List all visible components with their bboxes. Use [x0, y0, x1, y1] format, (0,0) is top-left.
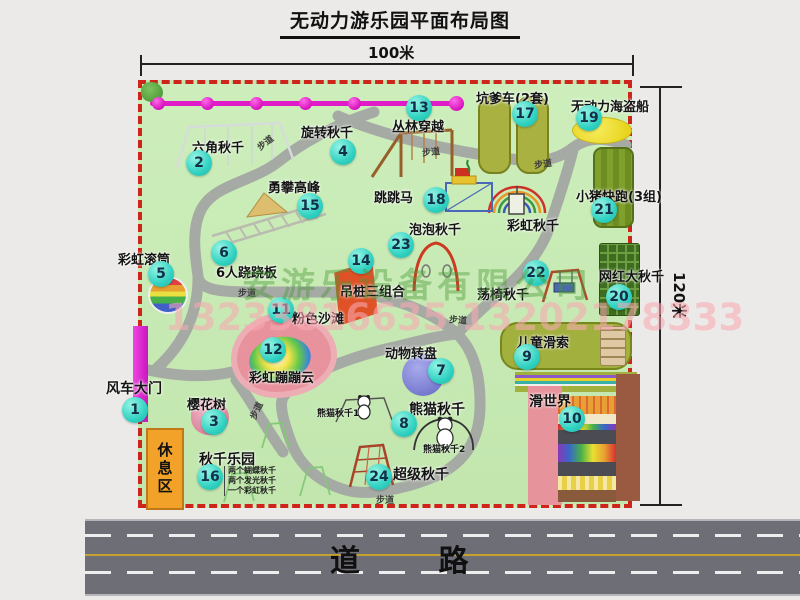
zipline-ball-icon — [152, 97, 165, 110]
badge-15: 15 — [297, 193, 323, 219]
label-hanging-post-combo: 吊桩三组合 — [340, 281, 405, 300]
slide-world-side-strip — [616, 374, 640, 501]
label-rainbow-bounce-cloud: 彩虹蹦蹦云 — [249, 367, 314, 386]
zipline-ball-icon — [348, 97, 361, 110]
slide-lane — [558, 430, 616, 444]
park-plan-page: 无动力游乐园平面布局图 100米 120米 — [0, 0, 800, 600]
badge-19: 19 — [576, 105, 602, 131]
badge-11: 11 — [268, 297, 294, 323]
slide-lane — [558, 462, 616, 476]
badge-16: 16 — [197, 464, 223, 490]
label-rainbow-arch-swing: 彩虹秋千 — [507, 215, 559, 234]
rest-area-box: 休息区 — [146, 428, 184, 510]
badge-23: 23 — [388, 232, 414, 258]
zipline-tower-icon — [600, 326, 626, 366]
badge-6: 6 — [211, 240, 237, 266]
label-rotating-swing: 旋转秋千 — [301, 122, 353, 141]
zipline-ball-icon — [449, 96, 464, 111]
label-jumping-horse: 跳跳马 — [374, 187, 413, 206]
path-walkway-label: 步道 — [449, 312, 468, 326]
badge-3: 3 — [201, 409, 227, 435]
swing-park-detail-item: 两个蝴蝶秋千 — [228, 466, 276, 476]
badge-21: 21 — [591, 197, 617, 223]
zipline-ball-icon — [299, 97, 312, 110]
slide-lane — [558, 476, 616, 490]
path-walkway-label: 步道 — [238, 286, 256, 299]
badge-1: 1 — [122, 397, 148, 423]
label-panda-swing: 熊猫秋千 — [409, 399, 465, 419]
road-label: 道 路 — [330, 536, 502, 580]
badge-14: 14 — [348, 248, 374, 274]
label-pink-beach: 粉色沙滩 — [292, 308, 344, 327]
label-panda-swing-2: 熊猫秋千2 — [423, 442, 465, 455]
label-bubble-swing: 泡泡秋千 — [409, 219, 461, 238]
dimension-height-label: 120米 — [669, 272, 690, 318]
slide-lane — [558, 490, 616, 502]
badge-2: 2 — [186, 150, 212, 176]
badge-8: 8 — [391, 411, 417, 437]
slide-lane — [558, 444, 616, 462]
page-title: 无动力游乐园平面布局图 — [280, 6, 520, 39]
label-pit-car: 坑爹车(2套) — [476, 88, 549, 107]
pit-car-track-icon — [478, 96, 511, 174]
rest-area-label: 休息区 — [155, 442, 176, 496]
badge-18: 18 — [423, 187, 449, 213]
badge-4: 4 — [330, 139, 356, 165]
badge-24: 24 — [366, 464, 392, 490]
badge-22: 22 — [523, 260, 549, 286]
label-giant-swing: 网红大秋千 — [599, 266, 664, 285]
label-animal-carousel: 动物转盘 — [385, 343, 437, 362]
badge-10: 10 — [559, 406, 585, 432]
badge-12: 12 — [260, 337, 286, 363]
road-strip: 道 路 — [85, 519, 800, 596]
path-walkway-label: 步道 — [421, 144, 440, 159]
label-panda-swing-1: 熊猫秋千1 — [317, 406, 359, 419]
swing-park-detail-item: 一个彩虹秋千 — [228, 486, 276, 496]
label-swing-chair: 荡椅秋千 — [477, 284, 529, 303]
badge-9: 9 — [514, 344, 540, 370]
zipline-ball-icon — [250, 97, 263, 110]
path-walkway-label: 步道 — [376, 493, 394, 506]
badge-20: 20 — [606, 284, 632, 310]
badge-5: 5 — [148, 261, 174, 287]
label-piggy-run: 小猪快跑(3组) — [576, 186, 662, 205]
badge-13: 13 — [406, 95, 432, 121]
title-bar: 无动力游乐园平面布局图 — [0, 6, 800, 39]
zipline-ball-icon — [201, 97, 214, 110]
badge-7: 7 — [428, 358, 454, 384]
label-windmill-gate: 风车大门 — [106, 378, 162, 398]
dimension-width-label: 100米 — [368, 42, 414, 63]
swing-park-detail-item: 两个发光秋千 — [228, 476, 276, 486]
badge-17: 17 — [512, 101, 538, 127]
swing-park-detail-list: 两个蝴蝶秋千 两个发光秋千 一个彩虹秋千 — [224, 466, 276, 496]
label-super-swing: 超级秋千 — [393, 464, 449, 484]
path-walkway-label: 步道 — [533, 156, 553, 171]
